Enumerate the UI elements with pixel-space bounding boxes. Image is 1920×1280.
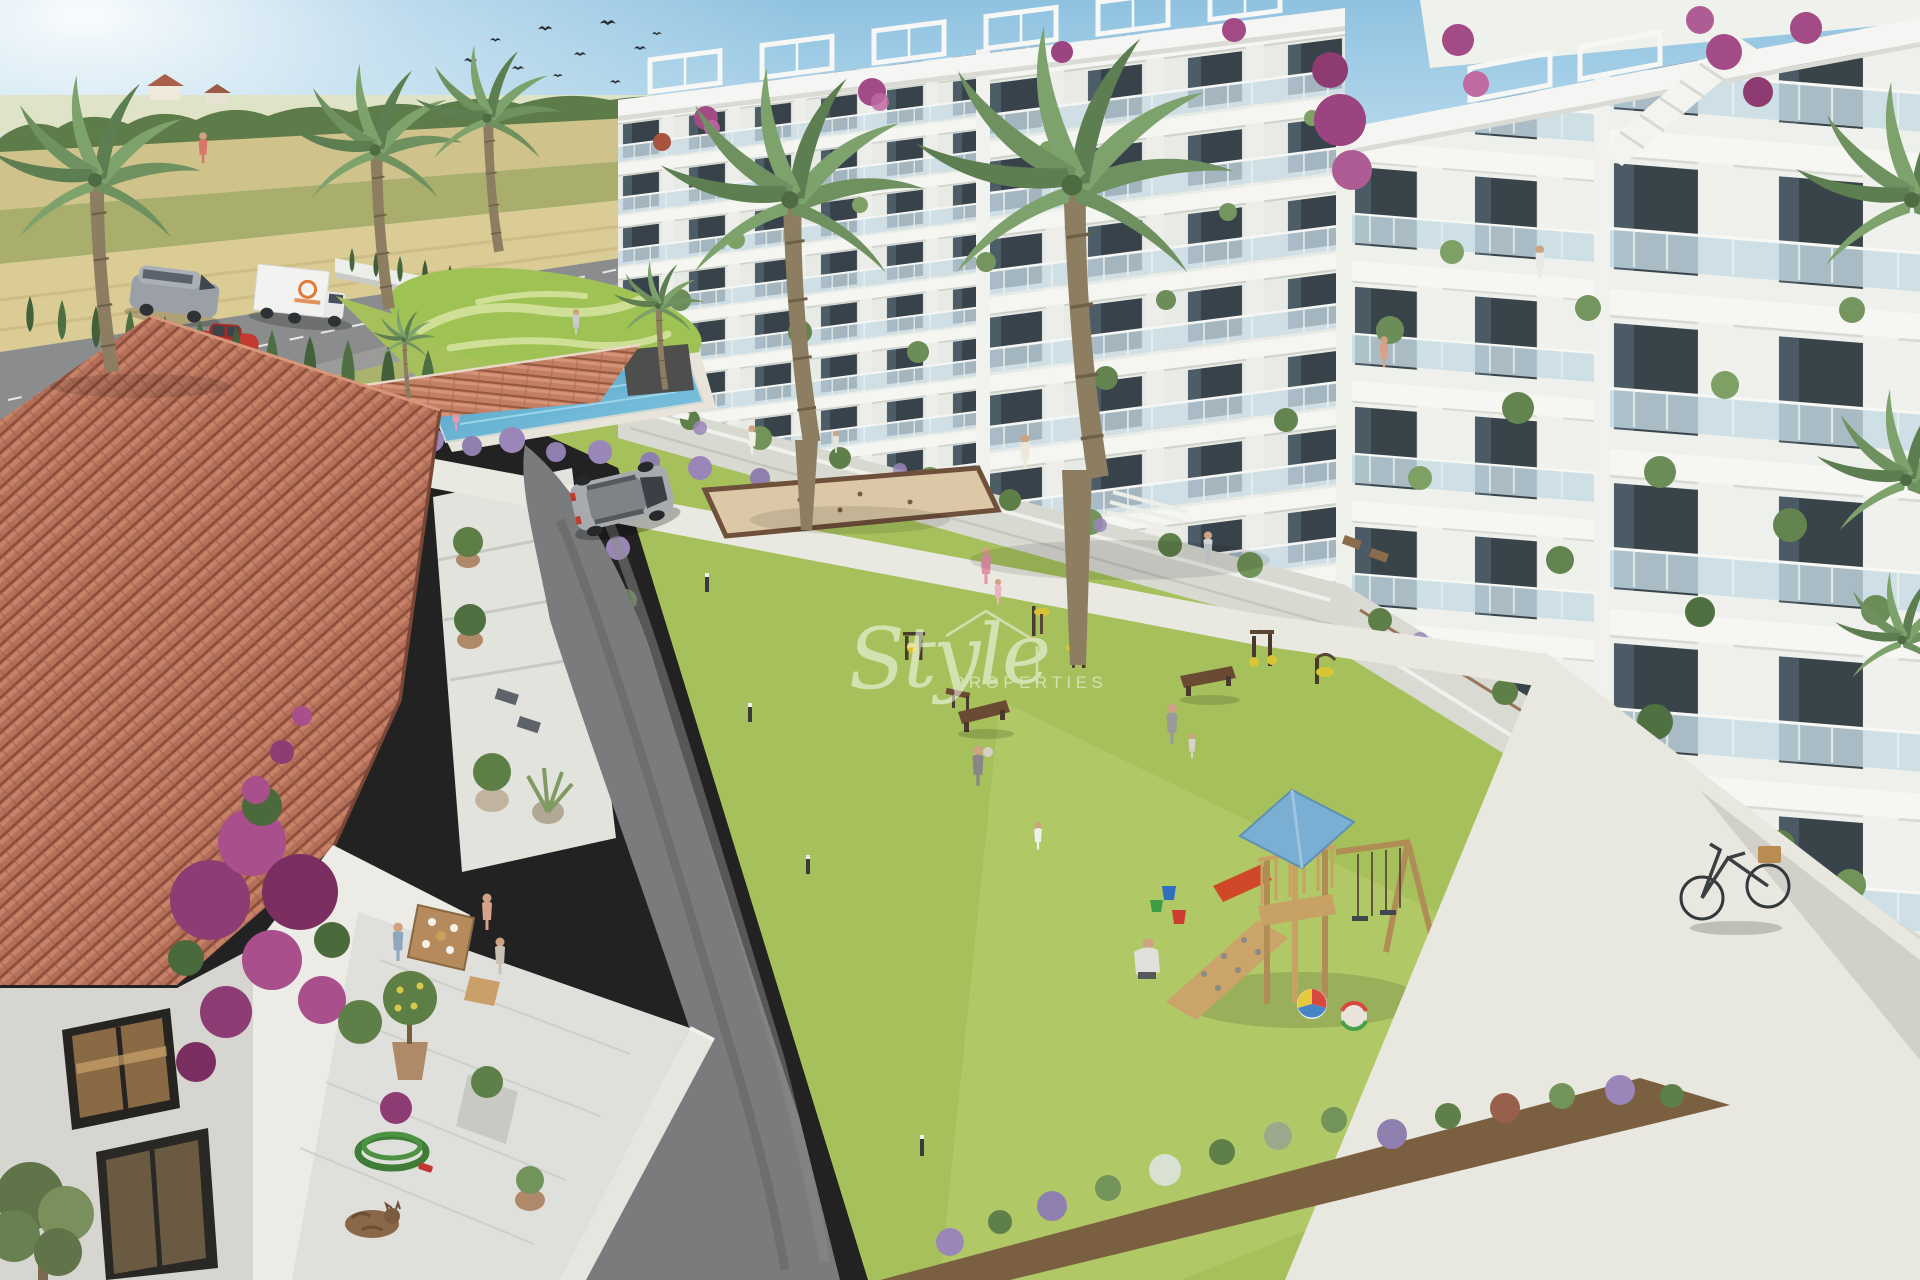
tower-leg	[1322, 848, 1328, 998]
bicycle-basket	[1758, 846, 1781, 863]
tower-leg	[1264, 858, 1270, 1004]
person-dining	[482, 894, 492, 931]
scene-canvas: Style PROPERTIES	[0, 0, 1920, 1280]
tower-leg	[1292, 854, 1298, 1002]
facade-pier-right	[1594, 73, 1610, 752]
watermark-caption: PROPERTIES	[953, 673, 1107, 692]
house-door	[96, 1128, 218, 1280]
rendering-image: Style PROPERTIES	[0, 0, 1920, 1280]
infant	[983, 747, 993, 757]
watermark-script: Style	[846, 604, 1050, 709]
